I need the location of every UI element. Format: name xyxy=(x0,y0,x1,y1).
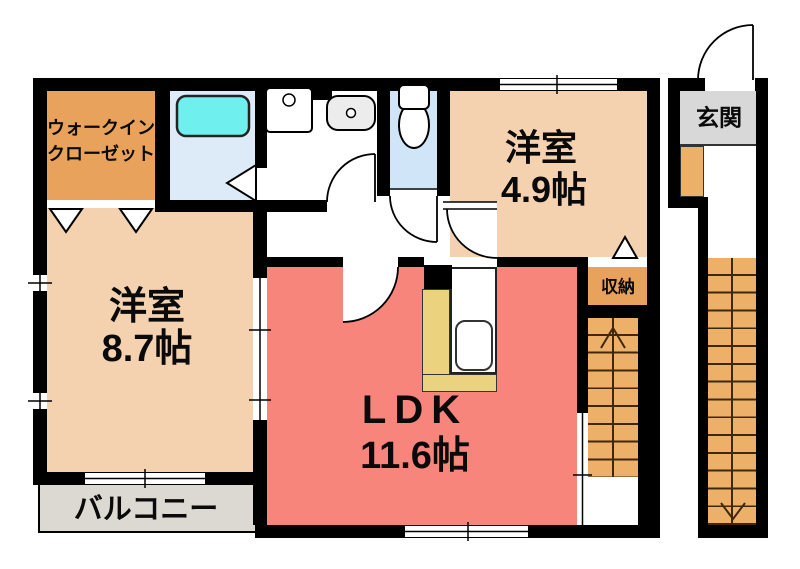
washroom-door-arc xyxy=(327,154,375,202)
wall-bath-bottom xyxy=(155,200,327,212)
wall-bath-right xyxy=(255,78,267,168)
door-gap-ldk xyxy=(343,257,398,267)
vanity-sink xyxy=(327,96,375,130)
wall-storage-left xyxy=(577,257,588,413)
sliding-door-bedroom-ldk xyxy=(253,278,267,420)
room-bathroom xyxy=(170,91,255,200)
washing-machine-drum xyxy=(283,94,295,106)
wall-strip-left-upper xyxy=(668,78,680,208)
wall-washroom-top-chunk xyxy=(310,78,332,100)
storage-label: 収納 xyxy=(601,279,635,296)
door-gap-bedroom-right xyxy=(443,202,497,209)
entrance-door-arc xyxy=(698,25,753,80)
ldk-size-label: 11.6帖 xyxy=(360,437,470,475)
wall-washroom-toilet xyxy=(377,78,390,196)
wall-corridor-ldk-c xyxy=(497,257,583,267)
floor-plan: ウォークイン クローゼット 洋室 8.7帖 洋室 4.9帖 LDK 11.6帖 … xyxy=(0,0,800,569)
vanity-faucet xyxy=(347,109,356,118)
walk-in-closet-label-line2: クローゼット xyxy=(47,145,155,163)
shoe-cabinet xyxy=(680,146,704,197)
exterior-stairs xyxy=(708,258,756,525)
wall-right xyxy=(647,78,660,538)
window-bedroom-right-top xyxy=(500,79,617,90)
sliding-door-ldk-landing xyxy=(577,413,588,525)
kitchen-counter-top xyxy=(450,267,497,374)
door-gap-entrance xyxy=(705,78,755,91)
toilet-door-arc xyxy=(390,196,437,242)
room-toilet xyxy=(390,91,437,188)
wall-kitchen-bump xyxy=(424,265,452,289)
door-gap-washroom xyxy=(327,200,377,212)
window-left-wall-b xyxy=(33,393,47,409)
walk-in-closet-label-line1: ウォークイン xyxy=(47,119,155,137)
wall-wic-right xyxy=(155,78,170,212)
wall-stairs-right xyxy=(638,318,647,525)
interior-stairs xyxy=(588,318,638,477)
wall-toilet-bedroom xyxy=(437,78,450,196)
wall-corridor-ldk-a xyxy=(253,257,345,267)
wall-strip-left-lower xyxy=(698,197,708,538)
bedroom-left-size-label: 8.7帖 xyxy=(102,330,193,368)
window-ldk-bottom xyxy=(405,526,528,537)
washing-machine xyxy=(266,88,312,132)
door-gap-bath xyxy=(255,168,267,200)
window-bedroom-left-bottom xyxy=(85,473,205,484)
wall-strip-right xyxy=(756,78,768,538)
bedroom-right-type-label: 洋室 xyxy=(505,130,577,166)
ldk-type-label: LDK xyxy=(362,390,468,430)
wall-corridor-ldk-b xyxy=(398,257,424,267)
balcony-label: バルコニー xyxy=(74,496,218,525)
wall-storage-bottom xyxy=(583,305,647,318)
wall-strip-bottom xyxy=(698,525,768,538)
bedroom-left-type-label: 洋室 xyxy=(109,288,185,326)
bedroom-right-size-label: 4.9帖 xyxy=(501,172,587,208)
entrance-label: 玄関 xyxy=(696,107,742,130)
window-left-wall-a xyxy=(33,275,47,291)
